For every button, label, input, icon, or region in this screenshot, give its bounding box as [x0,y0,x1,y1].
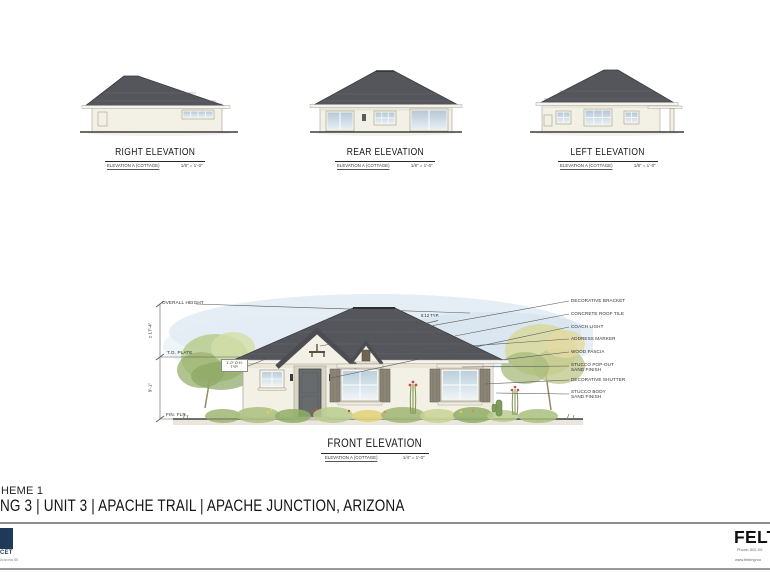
front-elevation-title-block: FRONT ELEVATION ELEVATION A (COTTAGE) 1/… [300,434,450,462]
left-logo-subtext: Arizona 85 [0,558,18,562]
left-elevation-drawing [526,60,688,140]
front-elevation-title: FRONT ELEVATION [328,438,423,450]
rear-elevation-drawing [306,60,466,140]
drawing-sheet: OVERALL HEIGHT ± 17'-4" T.O. PLATE 9'-1"… [0,0,770,577]
right-elevation-title-block: RIGHT ELEVATION ELEVATION A (COTTAGE) 1/… [100,142,210,170]
callout-decorative-shutter: DECORATIVE SHUTTER [571,377,625,382]
divider-bottom [0,568,770,570]
rear-elevation-subtitle: ELEVATION A (COTTAGE) [337,163,390,170]
callout-address-marker: ADDRESS MARKER [571,336,616,341]
left-logo-mark [0,528,13,549]
callout-concrete-roof-tile: CONCRETE ROOF TILE [571,311,624,316]
scheme-label: HEME 1 [1,485,43,497]
right-elevation-drawing [76,60,242,140]
callout-stucco-body: STUCCO BODY SAND FINISH [571,389,606,399]
right-elevation-title: RIGHT ELEVATION [115,147,195,158]
right-elevation-scale: 1/8" = 1'-0" [181,163,203,170]
project-title: NG 3 | UNIT 3 | APACHE TRAIL | APACHE JU… [0,497,405,516]
front-elevation-subtitle: ELEVATION A (COTTAGE) [325,455,378,462]
dim-plate-height: 9'-1" [148,373,153,403]
rear-elevation-scale: 1/8" = 1'-0" [411,163,433,170]
brand-phone: Phone: 602.XX [737,548,763,552]
rear-elevation-title-block: REAR ELEVATION ELEVATION A (COTTAGE) 1/8… [330,142,440,170]
fin-floor-label: FIN. FLR. [166,412,187,417]
left-elevation-title-block: LEFT ELEVATION ELEVATION A (COTTAGE) 1/8… [553,142,663,170]
right-elevation-subtitle: ELEVATION A (COTTAGE) [107,163,160,170]
top-plate-label: T.O. PLATE [167,350,192,355]
divider-top [0,522,770,524]
overhang-note: 1'-0" O.H. TYP. [221,359,248,372]
roof-pitch-note: 5:12 TYP. [421,313,439,318]
overall-height-label: OVERALL HEIGHT [162,300,204,305]
dim-overall-height: ± 17'-4" [148,316,153,346]
front-elevation-scale: 1/4" = 1'-0" [403,455,425,462]
left-elevation-title: LEFT ELEVATION [571,147,645,158]
callout-decorative-bracket: DECORATIVE BRACKET [571,298,625,303]
rear-elevation-title: REAR ELEVATION [346,147,423,158]
callout-stucco-popout: STUCCO POP-OUT SAND FINISH [571,362,614,372]
left-elevation-subtitle: ELEVATION A (COTTAGE) [560,163,613,170]
callout-wood-fascia: WOOD FASCIA [571,349,605,354]
brand-website: www.feltengrou [735,558,761,562]
left-elevation-scale: 1/8" = 1'-0" [634,163,656,170]
callout-coach-light: COACH LIGHT [571,324,604,329]
brand-logo-text: FELT [734,527,770,548]
left-logo-text: CET [0,550,13,556]
